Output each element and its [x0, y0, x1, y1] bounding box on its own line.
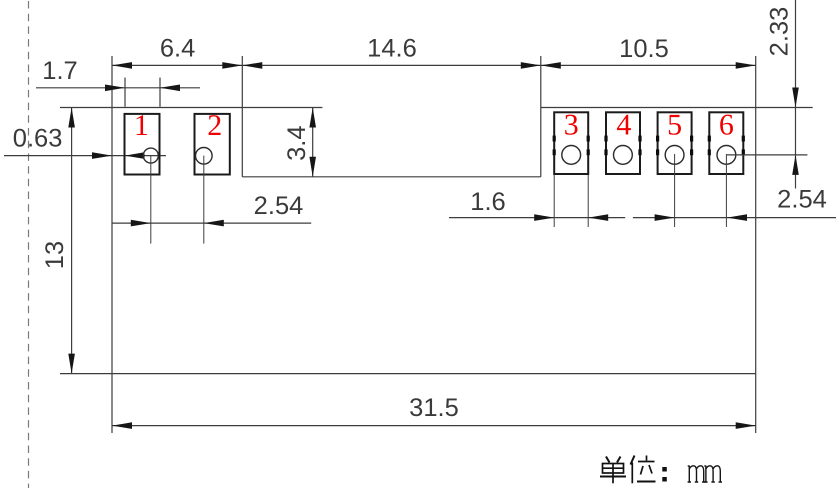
svg-text:1.7: 1.7	[42, 57, 77, 85]
svg-text:1: 1	[134, 109, 149, 142]
svg-text:31.5: 31.5	[409, 394, 459, 422]
svg-text:3.4: 3.4	[283, 125, 311, 160]
svg-text:3: 3	[564, 109, 579, 142]
svg-text:2.33: 2.33	[766, 7, 794, 57]
svg-text:14.6: 14.6	[367, 35, 417, 63]
svg-text:10.5: 10.5	[619, 35, 669, 63]
svg-text:4: 4	[616, 109, 631, 142]
svg-text:6: 6	[719, 109, 734, 142]
svg-text:2: 2	[207, 109, 222, 142]
svg-text:2.54: 2.54	[254, 192, 304, 220]
svg-text:6.4: 6.4	[160, 35, 195, 63]
svg-text:5: 5	[667, 109, 682, 142]
svg-text:2.54: 2.54	[777, 186, 827, 214]
svg-text:13: 13	[41, 241, 69, 269]
svg-text:1.6: 1.6	[470, 188, 505, 216]
svg-text:0.63: 0.63	[13, 124, 63, 152]
